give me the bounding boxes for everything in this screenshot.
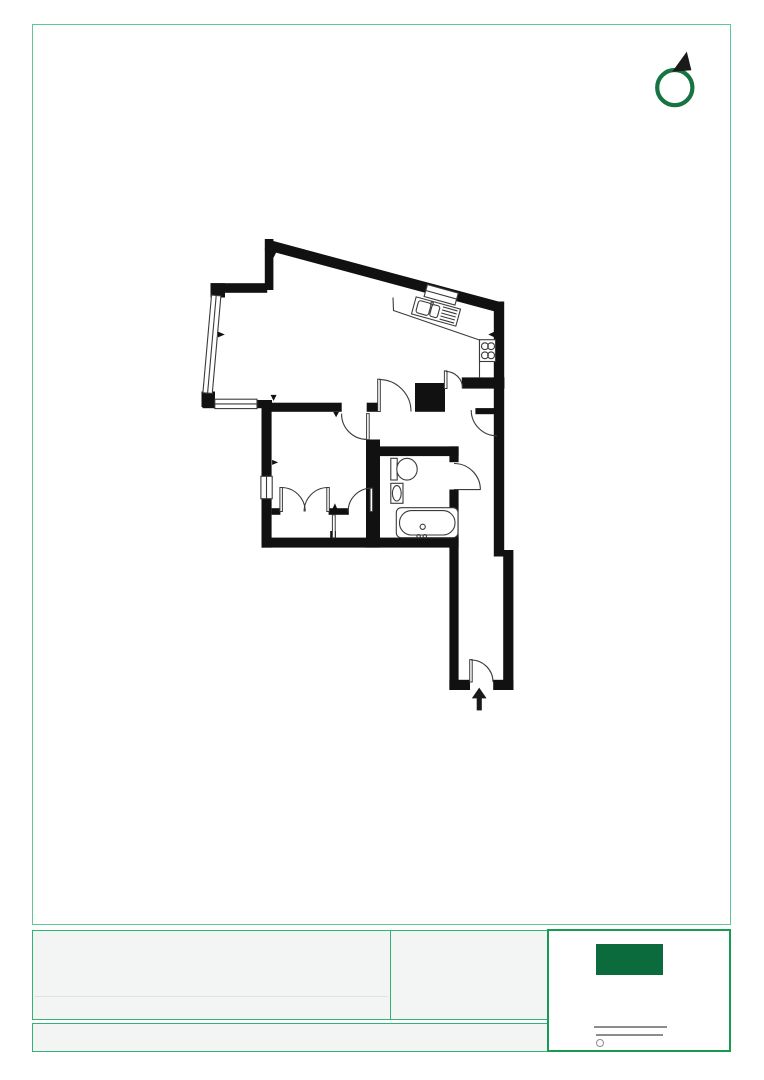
bedroom-door (342, 414, 370, 440)
living-room-door (378, 379, 411, 411)
north-arrow-icon (657, 52, 692, 106)
window-left (203, 295, 221, 393)
toilet-icon (391, 458, 417, 480)
agency-logo (596, 944, 663, 975)
title-block-rule-2 (596, 1034, 663, 1036)
floor-plan (0, 0, 764, 1080)
entrance-arrow-icon (472, 688, 487, 711)
title-block-rule-1 (594, 1026, 667, 1028)
floorplan-walls (202, 239, 514, 690)
wardrobe-double-door (280, 488, 329, 512)
window-bottom (215, 399, 257, 408)
hob-icon (480, 340, 496, 362)
kitchen-door (444, 371, 462, 389)
footer-details-cell-left (32, 930, 391, 1020)
footer-details-strip (32, 1023, 548, 1052)
footer-divider-line (35, 996, 388, 997)
window-bedroom (261, 476, 272, 498)
storage-block (415, 383, 445, 412)
basin-icon (391, 483, 403, 503)
wardrobe-partition (332, 515, 335, 538)
title-block (547, 929, 731, 1052)
bathroom-door (454, 464, 481, 490)
bathtub-icon (396, 508, 458, 538)
title-block-seal-icon (596, 1039, 604, 1047)
footer-details-cell-middle (390, 930, 548, 1020)
page (0, 0, 764, 1080)
entrance-door (470, 660, 493, 682)
